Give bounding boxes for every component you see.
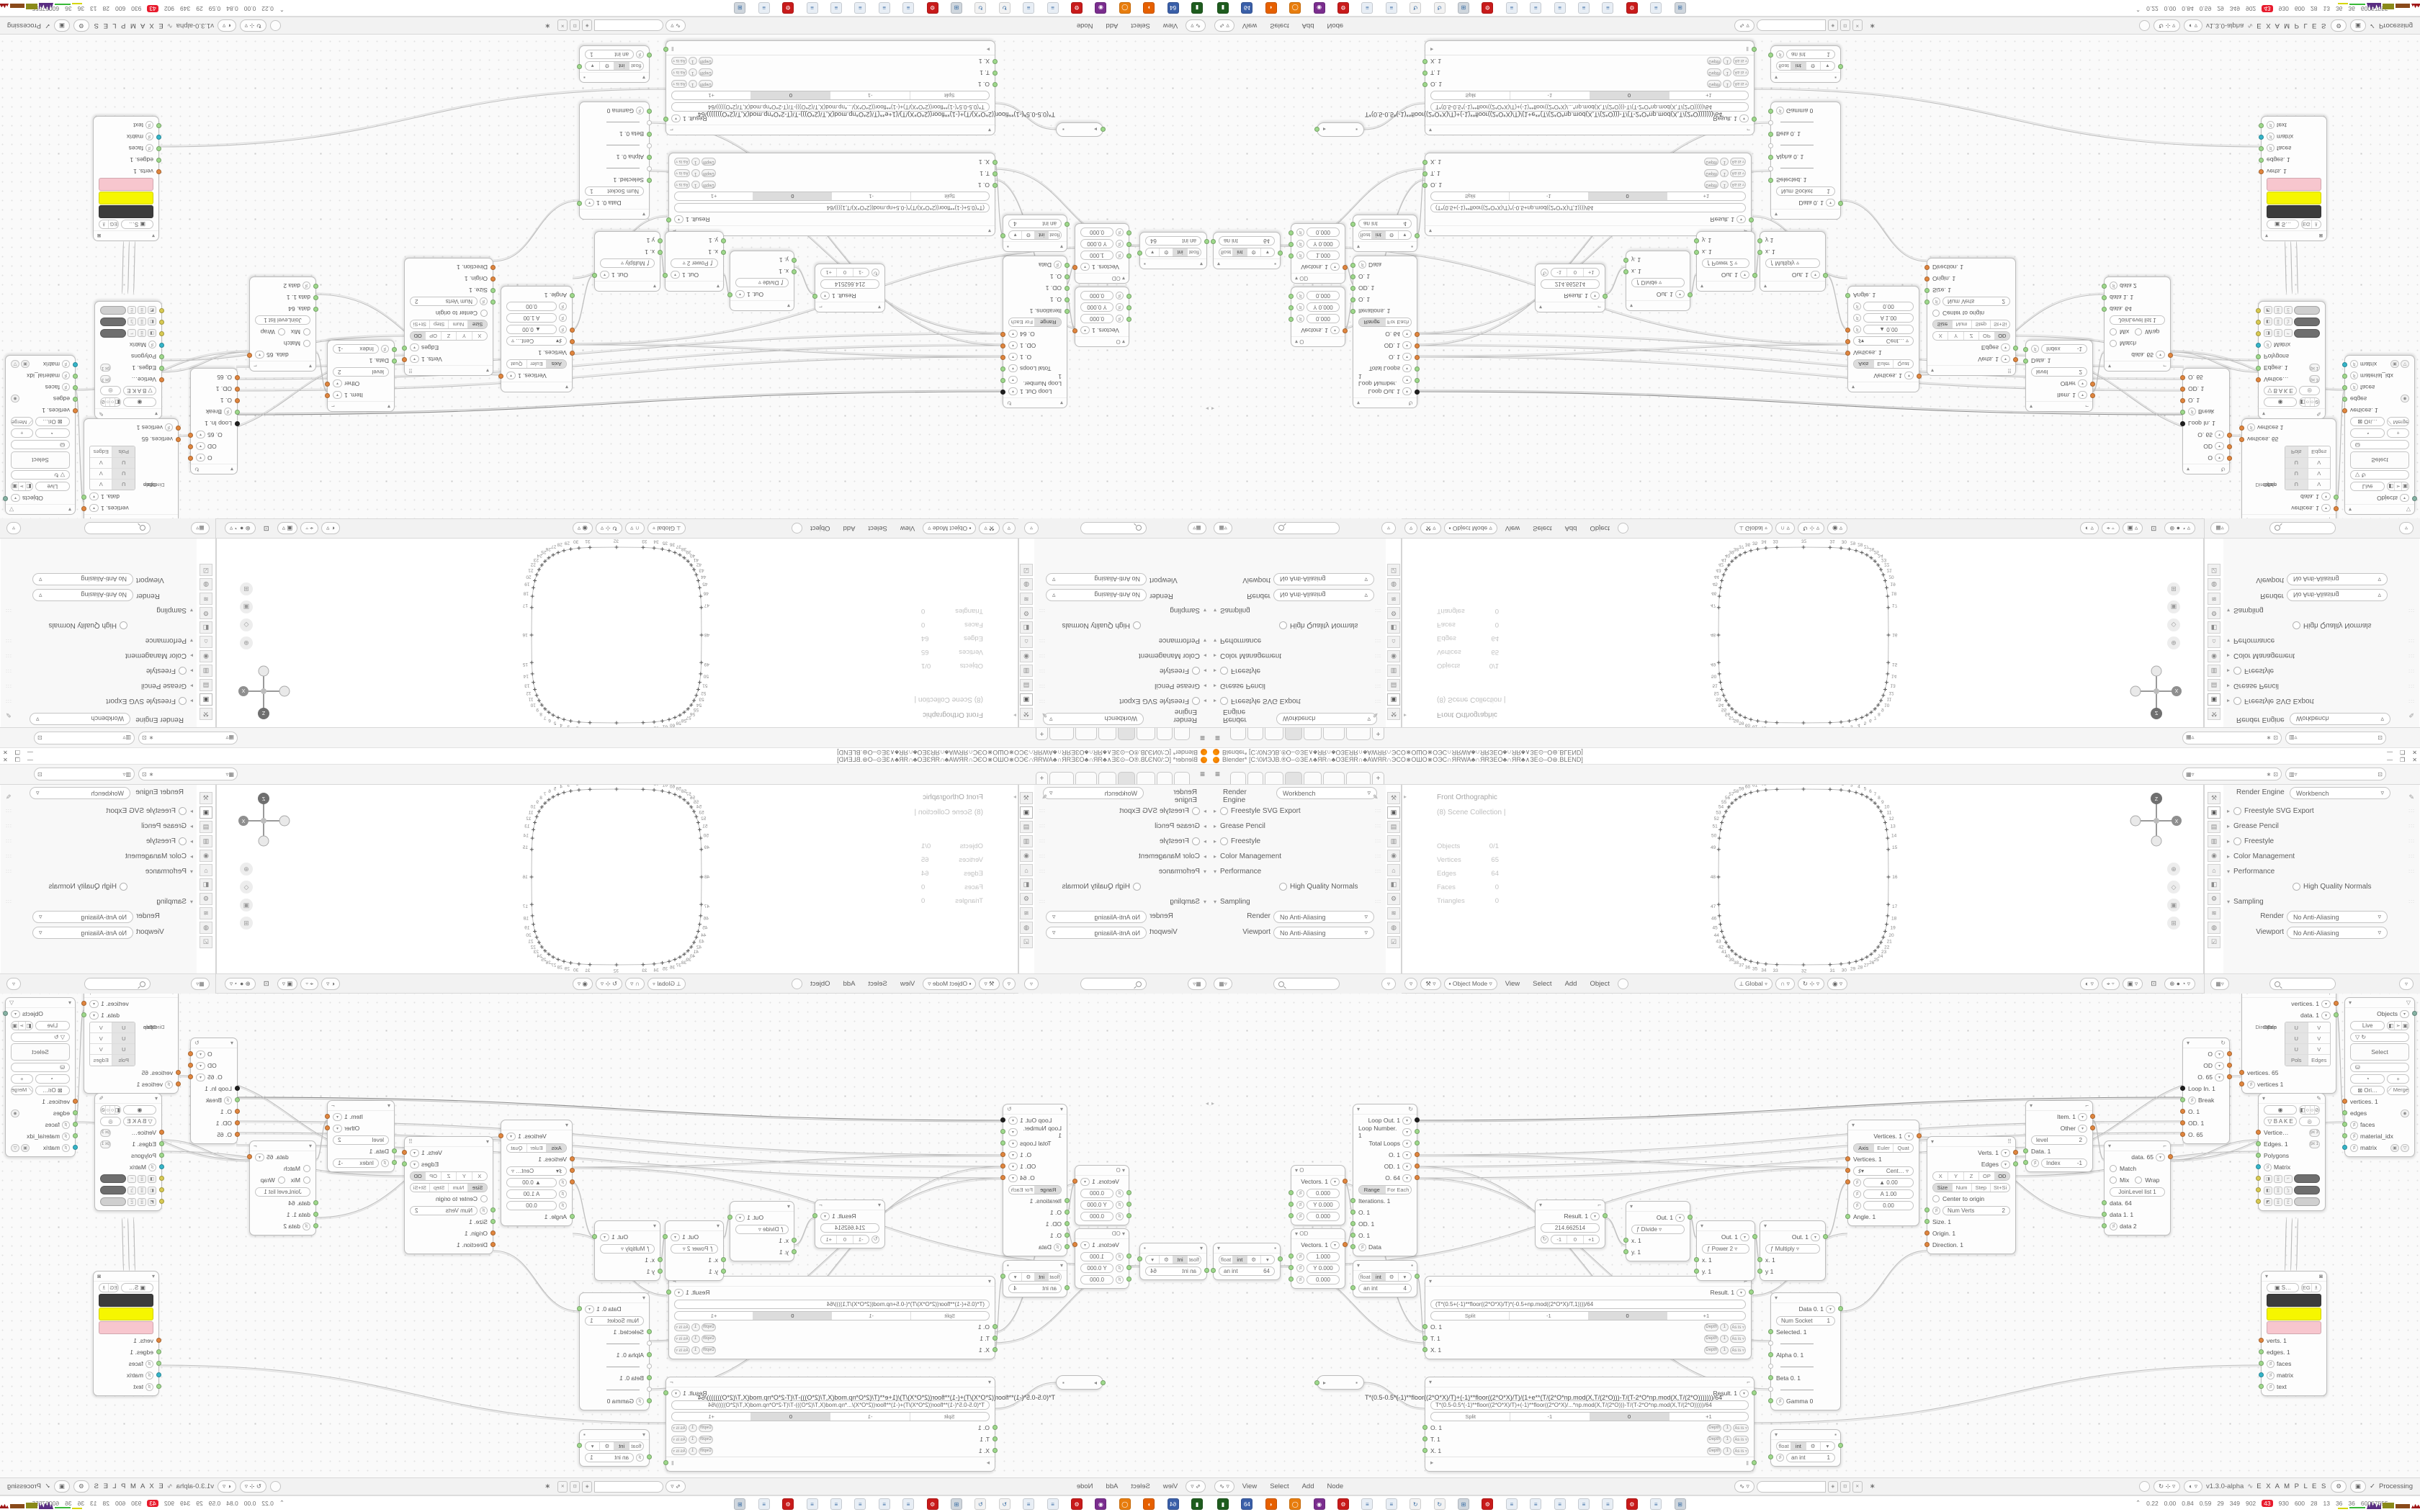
input-option-button[interactable]: Depth — [702, 158, 716, 166]
socket-green[interactable] — [1126, 1265, 1131, 1270]
view-layer-selector[interactable]: ▥▿⊡ — [34, 732, 135, 744]
header-control[interactable]: ◉ ▿ — [573, 523, 593, 535]
properties-tab-icon[interactable]: ▥ — [200, 665, 212, 677]
node-formula-a[interactable]: ▾⌐Result. 1▾(T*(0.5+(-1)**floor((2*O*X)/… — [668, 1276, 995, 1359]
socket-green[interactable] — [1422, 1347, 1428, 1352]
node-field[interactable]: ƒ Multiply ▿ — [1765, 1244, 1820, 1254]
socket-yellow[interactable] — [159, 331, 164, 336]
add-workspace-button[interactable]: + — [1372, 772, 1384, 784]
segment-button[interactable]: Split — [1431, 1312, 1510, 1320]
input-option-button[interactable]: px 3 — [100, 1129, 111, 1137]
node-field[interactable]: ƒ Power 2 ▿ — [1702, 259, 1749, 269]
menu-select[interactable]: Select — [1533, 525, 1551, 533]
socket-menu-icon[interactable]: ▾ — [1402, 1128, 1412, 1136]
properties-section-color-management[interactable]: ▸Color Management::: — [1034, 648, 1210, 663]
segment-button[interactable]: int — [1791, 63, 1806, 71]
segment-button[interactable]: St+Si — [411, 1184, 429, 1192]
node-header[interactable]: ▾▪ — [1353, 241, 1417, 251]
segment-button[interactable]: 0 — [1589, 1312, 1667, 1320]
taskbar-icon-sync-blue[interactable]: ↻ — [974, 1498, 986, 1510]
socket-orange[interactable] — [2180, 1120, 2185, 1125]
socket-menu-icon[interactable]: ▾ — [2215, 1062, 2224, 1070]
segment-button[interactable]: ⚙ — [599, 63, 614, 71]
input-option-button[interactable]: 1 — [689, 69, 697, 77]
node-header[interactable]: ▾↻ — [1353, 397, 1417, 408]
socket-empty[interactable] — [1768, 1341, 1773, 1346]
number-field[interactable]: level2 — [333, 368, 389, 377]
checkbox[interactable] — [1279, 621, 1287, 629]
node-header[interactable]: ▾◙ — [94, 1272, 158, 1282]
display-toggle-button[interactable]: ◧ — [148, 1187, 156, 1194]
window-controls[interactable]: —❐✕ — [3, 757, 33, 763]
input-option-button[interactable]: As is ▿ — [1730, 1346, 1746, 1354]
maximize-button[interactable]: ❐ — [2400, 749, 2405, 755]
properties-tab-icon[interactable]: ◧ — [200, 878, 212, 891]
checkbox[interactable] — [480, 310, 488, 317]
color-field[interactable] — [100, 318, 126, 326]
unlink-button[interactable]: ✕ — [1852, 1481, 1863, 1493]
taskbar-icon-calculator[interactable]: ⊞ — [1675, 2, 1686, 14]
input-option-button[interactable]: 1 — [1720, 1335, 1729, 1343]
node-collapsed[interactable]: ▸▪ — [1056, 1375, 1103, 1390]
socket-green[interactable] — [2013, 346, 2018, 351]
segmented-buttons[interactable]: AxisEulerQuat — [1853, 360, 1914, 369]
header-tool-button[interactable]: ▣ — [2350, 19, 2366, 32]
menu-select[interactable]: Select — [1131, 22, 1149, 30]
taskbar-icon-blender[interactable]: ◯ — [1119, 2, 1131, 14]
menu-view[interactable]: View — [900, 980, 915, 988]
segment-button[interactable]: OD — [411, 333, 425, 341]
socket-green[interactable] — [2259, 123, 2264, 128]
node-field[interactable]: ▽ ↻ — [2350, 1032, 2409, 1042]
header-control[interactable]: ⊕ ● ◔ ▿ — [225, 978, 256, 990]
node-header[interactable]: ▾ O — [1075, 336, 1129, 346]
input-option-button[interactable]: As is ▿ — [1733, 1447, 1749, 1455]
node-button[interactable]: ◉ — [2264, 398, 2297, 408]
socket-green[interactable] — [1422, 183, 1428, 188]
socket-green[interactable] — [2023, 1160, 2028, 1165]
socket-menu-icon[interactable]: ▾ — [11, 1010, 20, 1018]
node-header[interactable]: ▾⌐ — [815, 1200, 884, 1210]
socket-orange[interactable] — [1415, 355, 1420, 360]
properties-tab-strip[interactable]: ⚒▣▤▥◉⌂◧⚙≋◍☑ — [1018, 792, 1034, 948]
number-field[interactable]: 1.000 — [1307, 1252, 1340, 1261]
node-header[interactable]: ▾⌐ — [1425, 1377, 1754, 1387]
properties-tab-icon[interactable]: ≋ — [1020, 907, 1033, 919]
node-header[interactable]: ▾ — [1626, 300, 1690, 310]
socket-green[interactable] — [1694, 238, 1699, 243]
number-field[interactable]: Num Socket1 — [1776, 187, 1835, 197]
table-option[interactable]: U — [2285, 1044, 2308, 1054]
workspace-tab[interactable] — [1075, 728, 1097, 740]
number-field[interactable]: an int1 — [585, 1453, 634, 1462]
socket-green[interactable] — [1126, 317, 1131, 322]
properties-tab-strip[interactable]: ⚒▣▤▥◉⌂◧⚙≋◍☑ — [198, 792, 214, 948]
socket-orange[interactable] — [247, 1154, 252, 1159]
tree-name-input[interactable] — [1757, 1481, 1826, 1493]
header-control[interactable] — [792, 523, 802, 534]
grid-icon[interactable]: ⊞ — [2167, 582, 2180, 595]
copy-icon[interactable]: ⊡ — [2378, 735, 2383, 742]
icon-button[interactable]: ⟋ Merge — [12, 1086, 32, 1094]
socket-orange[interactable] — [402, 357, 407, 362]
socket-green[interactable] — [1350, 1210, 1355, 1215]
input-option-button[interactable]: 1 — [689, 1436, 697, 1444]
header-control[interactable]: ∩ ▿ — [1775, 523, 1795, 535]
socket-green[interactable] — [1752, 1390, 1757, 1395]
segmented-buttons[interactable]: AxisEulerQuat — [506, 1143, 567, 1153]
socket-orange[interactable] — [1845, 1168, 1850, 1173]
display-toggle-button[interactable]: ⣿ — [138, 318, 146, 326]
socket-green[interactable] — [1289, 1202, 1294, 1207]
socket-empty[interactable] — [647, 166, 652, 171]
properties-section-color-management[interactable]: ▸Color Management::: — [2223, 849, 2419, 864]
color-swatch[interactable] — [99, 1294, 153, 1307]
scene-selector[interactable]: ▦▿∗⊡ — [2182, 732, 2282, 744]
socket-menu-icon[interactable]: ▾ — [674, 1289, 684, 1297]
node-number-int-64[interactable]: ▾▪floatint⚙▾an int64 — [1213, 232, 1281, 269]
properties-tab-icon[interactable]: ⚙ — [2208, 607, 2220, 619]
socket-orange[interactable] — [1000, 1164, 1005, 1169]
table-option[interactable]: Edges — [90, 446, 112, 457]
socket-green[interactable] — [1415, 1140, 1420, 1146]
menu-view[interactable]: View — [1163, 1482, 1178, 1490]
segment-button[interactable]: ⚙ — [1159, 1256, 1173, 1264]
socket-menu-icon[interactable]: ▾ — [1402, 330, 1412, 338]
viewport-3d[interactable]: ▸ Front Orthographic (8) Scene Collectio… — [1402, 539, 2204, 727]
node-vector-o[interactable]: ▾ OVectors. 1▾♯0.000♯Y 0.000♯0.000 — [1075, 287, 1129, 347]
icon-button[interactable]: EG — [108, 221, 117, 229]
node-collapsed[interactable]: ▸▪ — [1317, 122, 1364, 137]
socket-orange[interactable] — [2013, 1150, 2018, 1155]
socket-green[interactable] — [1838, 1306, 1843, 1311]
input-option-button[interactable]: Depth — [702, 170, 716, 178]
input-option-button[interactable]: Depth — [699, 1436, 713, 1444]
socket-menu-icon[interactable]: ▾ — [1008, 1174, 1018, 1182]
socket-green[interactable] — [1204, 239, 1209, 244]
socket-green[interactable] — [1768, 1352, 1773, 1357]
checkbox[interactable] — [1192, 697, 1200, 705]
node-math-multiply[interactable]: ▾Out. 1▾ƒ Multiply ▿x. 1y 1 — [1760, 231, 1826, 292]
zoom-icon[interactable]: ⊕ — [2167, 636, 2180, 649]
socket-green[interactable] — [663, 117, 668, 122]
socket-orange[interactable] — [235, 1132, 240, 1137]
header-control[interactable]: ▣ ▿ — [277, 523, 298, 535]
socket-orange[interactable] — [1924, 276, 1930, 282]
socket-menu-icon[interactable]: ▾ — [196, 443, 205, 451]
socket-green[interactable] — [490, 1207, 496, 1212]
socket-orange[interactable] — [1343, 328, 1348, 333]
segmented-buttons[interactable]: RangeFor Each — [1008, 1185, 1062, 1194]
workspace-tab[interactable] — [1157, 772, 1173, 784]
properties-section-performance[interactable]: ▾Performance::: — [2223, 864, 2419, 879]
number-field[interactable]: Num Socket1 — [1776, 1316, 1835, 1326]
icon-button[interactable]: ◎ — [2300, 1117, 2319, 1125]
node-header[interactable]: ▾⌐ — [2026, 401, 2092, 411]
socket-menu-icon[interactable]: ▾ — [600, 271, 609, 279]
socket-orange[interactable] — [81, 506, 86, 511]
checkbox[interactable] — [303, 1176, 310, 1184]
taskbar-icon-notepad[interactable]: ≡ — [1506, 1498, 1518, 1510]
menu-add[interactable]: Add — [1565, 980, 1577, 988]
taskbar-icon-console[interactable]: ▮ — [1217, 2, 1229, 14]
socket-green[interactable] — [2102, 307, 2107, 312]
segmented-buttons[interactable]: floatint⚙▾ — [1008, 1272, 1062, 1282]
node-number-int-4[interactable]: ▾▪floatint⚙▾an int4 — [1003, 1260, 1067, 1297]
socket-green[interactable] — [647, 1329, 652, 1334]
socket-green[interactable] — [647, 132, 652, 137]
socket-green[interactable] — [73, 374, 78, 379]
header-control[interactable]: ▣ ▿ — [2123, 978, 2143, 990]
socket-menu-icon[interactable]: ▾ — [1330, 1178, 1340, 1186]
socket-green[interactable] — [1422, 1425, 1428, 1430]
socket-menu-icon[interactable]: ▾ — [333, 1125, 342, 1133]
socket-green[interactable] — [81, 1012, 86, 1017]
display-toggle-button[interactable]: ◨ — [148, 1175, 156, 1183]
input-option-button[interactable]: As is ▿ — [1730, 158, 1746, 166]
segment-button[interactable]: Euler — [526, 1144, 547, 1152]
properties-tab-icon[interactable]: ☑ — [200, 936, 212, 948]
display-toggle-button[interactable]: ⣳ — [127, 1187, 136, 1194]
number-field[interactable]: 0.000 — [1307, 1275, 1340, 1284]
taskbar-icon-calculator[interactable]: ⊞ — [1675, 1498, 1686, 1510]
node-button[interactable]: Live — [35, 482, 70, 492]
segmented-buttons[interactable]: floatint⚙▾ — [1219, 248, 1275, 258]
node-header[interactable]: ▾⌐ — [1536, 302, 1605, 312]
socket-menu-icon[interactable]: ▾ — [2215, 431, 2224, 439]
node-list-item[interactable]: ▾⌐Item. 1▾Other▾level2Data. 1♯Index-1 — [327, 340, 395, 412]
number-field[interactable]: 0.00 — [1863, 302, 1914, 312]
socket-menu-icon[interactable]: ▾ — [2156, 1153, 2165, 1161]
editor-type-button[interactable]: ▦▿ — [191, 978, 210, 990]
menu-hamburger-icon[interactable]: ≡ — [1215, 770, 1220, 778]
cycle-button[interactable]: ↻ — [871, 1236, 879, 1243]
number-field[interactable]: A 1.00 — [1863, 1189, 1914, 1199]
socket-menu-icon[interactable]: ▾ — [2321, 1000, 2331, 1008]
properties-tab-icon[interactable]: ◧ — [1387, 621, 1400, 634]
socket-black[interactable] — [2180, 421, 2185, 426]
taskbar-icon-notepad[interactable]: ≡ — [1554, 2, 1566, 14]
socket-menu-icon[interactable]: ▾ — [1826, 1305, 1835, 1313]
render-engine-dropdown[interactable]: Workbench▿ — [1276, 713, 1377, 725]
input-option-button[interactable]: px 3 — [2309, 1129, 2320, 1137]
node-list-join[interactable]: ▾⌐data. 65▾MatchMixWrapJoinLevel list 1d… — [2104, 1140, 2171, 1236]
socket-black[interactable] — [1415, 390, 1420, 395]
segment-button[interactable]: OP — [1979, 333, 1994, 341]
header-control[interactable]: ◐ ▿ — [2184, 1480, 2202, 1493]
segment-button[interactable]: ⚙ — [1021, 232, 1034, 240]
segment-button[interactable]: Euler — [1874, 1144, 1894, 1152]
header-control[interactable]: ▪ Object Mode ▿ — [923, 978, 976, 990]
number-field[interactable]: level2 — [2031, 368, 2087, 377]
socket-green[interactable] — [1211, 1268, 1216, 1273]
header-control[interactable]: ↻ ⊹ ▿ — [240, 1480, 266, 1493]
properties-section-color-management[interactable]: ▸Color Management::: — [1, 849, 197, 864]
node-data-socket[interactable]: ▾Data 0. 1▾Num Socket1Selected. 1Alpha 0… — [1770, 102, 1841, 220]
socket-green[interactable] — [235, 410, 240, 415]
fake-user-button[interactable]: ◈ — [582, 1481, 592, 1493]
properties-section-performance[interactable]: ▾Performance::: — [1034, 864, 1210, 879]
properties-section-grease-pencil[interactable]: ▸Grease Pencil::: — [2223, 819, 2419, 834]
input-option-button[interactable]: 1 — [1720, 158, 1729, 166]
input-option-button[interactable]: Depth — [702, 1335, 716, 1343]
search-input[interactable] — [2269, 978, 2336, 990]
socket-orange[interactable] — [325, 1125, 330, 1130]
socket-orange[interactable] — [1415, 1152, 1420, 1157]
taskbar-icon-sync-blue[interactable]: ↻ — [1434, 2, 1446, 14]
input-option-button[interactable]: 1 — [689, 1447, 697, 1455]
socket-orange[interactable] — [2239, 1081, 2244, 1086]
socket-menu-icon[interactable]: ▾ — [735, 291, 745, 299]
properties-tab-icon[interactable]: ▤ — [2208, 821, 2220, 833]
segment-button[interactable]: ▾ — [1146, 249, 1159, 257]
socket-green[interactable] — [792, 1249, 797, 1254]
socket-orange[interactable] — [570, 1156, 575, 1161]
pin-icon[interactable]: ∗ — [2267, 735, 2272, 742]
socket-green[interactable] — [1422, 82, 1428, 87]
socket-green[interactable] — [73, 397, 78, 402]
node-viewer-draw[interactable]: ▾▽Objects▾Live◧➣▣▽ ↻Select⛁◔+⊠ Ori…⟋ Mer… — [5, 997, 76, 1157]
icon-button[interactable]: ▣ — [12, 1022, 18, 1030]
processing-checkbox[interactable]: ✓ — [2370, 1482, 2375, 1490]
socket-menu-icon[interactable]: ▾ — [1826, 199, 1835, 207]
socket-orange[interactable] — [2256, 377, 2261, 382]
icon-button[interactable]: ○ — [105, 399, 109, 407]
monitor-expand-icon[interactable]: ⌃ — [279, 1499, 284, 1507]
node-header[interactable]: ▾▪ — [580, 72, 649, 82]
cycle-button[interactable]: ↻ — [871, 269, 879, 277]
number-field[interactable]: an int64 — [1219, 1266, 1275, 1276]
segment-button[interactable]: +1 — [675, 193, 753, 201]
node-bake-viewer[interactable]: ▾✎◉◧○○⊘▽ B A K E◎Vertice…px 3Edges. 1px … — [94, 1093, 162, 1211]
header-control[interactable]: ∿ ▿ — [1214, 19, 1234, 32]
minimize-button[interactable]: — — [27, 757, 33, 763]
socket-orange[interactable] — [235, 387, 240, 392]
socket-green[interactable] — [658, 250, 663, 255]
socket-green[interactable] — [1350, 263, 1355, 268]
display-toggle-button[interactable]: ⣿ — [2274, 1187, 2282, 1194]
socket-menu-icon[interactable]: ▾ — [671, 115, 681, 123]
input-option-button[interactable]: 1 — [1723, 58, 1731, 66]
node-header[interactable]: ▾ — [665, 281, 723, 291]
icon-button[interactable]: + — [12, 1075, 32, 1083]
taskbar-icon-notepad[interactable]: ≡ — [1650, 1498, 1662, 1510]
node-header[interactable]: ▾ — [665, 1221, 723, 1231]
socket-green[interactable] — [1126, 253, 1131, 258]
header-control[interactable] — [2139, 20, 2150, 31]
socket-green[interactable] — [721, 238, 726, 243]
display-toggle-button[interactable]: ◧ — [148, 318, 156, 326]
header-control[interactable]: ⚒ ▿ — [1420, 978, 1440, 990]
input-option-button[interactable]: Depth — [1704, 1335, 1718, 1343]
header-control[interactable]: ∩ ▿ — [625, 978, 645, 990]
unlink-button[interactable]: ✕ — [557, 1481, 568, 1493]
antialiasing-dropdown[interactable]: No Anti-Aliasing▿ — [1046, 927, 1147, 939]
node-field[interactable]: ⛁ — [11, 1063, 70, 1072]
taskbar-icon-gears-red[interactable]: ⚙ — [927, 2, 938, 14]
node-header[interactable]: ▾⌐ — [328, 1101, 394, 1111]
node-rotate-vertices[interactable]: ▾Vertices. 1▾AxisEulerQuatVertices. 1♯▾C… — [501, 1120, 573, 1226]
taskbar-icon-firefox[interactable]: ◗ — [1265, 1498, 1277, 1510]
menu-select[interactable]: Select — [1270, 22, 1289, 30]
display-toggle-button[interactable]: ⣟ — [2284, 307, 2293, 315]
node-loop-out[interactable]: ▾↻Loop Out. 1▾Loop Number. 1▾Total Loops… — [1353, 256, 1417, 408]
window-controls[interactable]: —❐✕ — [3, 749, 33, 755]
segmented-buttons[interactable]: XYZOPOD — [410, 332, 488, 341]
segment-button[interactable]: +1 — [1667, 193, 1745, 201]
node-loop-out[interactable]: ▾↻Loop Out. 1▾Loop Number. 1▾Total Loops… — [1353, 1104, 1417, 1256]
properties-tab-icon[interactable]: ◉ — [200, 650, 212, 662]
socket-green[interactable] — [577, 201, 582, 206]
window-controls[interactable]: —❐✕ — [2387, 749, 2417, 755]
node-loop-out[interactable]: ▾↻Loop Out. 1▾Loop Number. 1▾Total Loops… — [1003, 1104, 1067, 1256]
socket-cyan[interactable] — [2259, 135, 2264, 140]
table-option[interactable]: U — [2285, 480, 2308, 490]
number-field[interactable]: an int1 — [1786, 50, 1835, 60]
segment-button[interactable]: int — [1372, 232, 1385, 240]
table-option[interactable]: U — [112, 1044, 135, 1054]
table-option[interactable]: Edges — [2308, 1055, 2331, 1066]
workspace-tab[interactable] — [1049, 772, 1074, 784]
display-toggle-button[interactable]: ⣿ — [2274, 1175, 2282, 1183]
input-option-button[interactable]: Depth — [702, 1346, 716, 1354]
node-list-item[interactable]: ▾⌐Item. 1▾Other▾level2Data. 1♯Index-1 — [327, 1100, 395, 1172]
workspace-tab[interactable] — [1137, 772, 1155, 784]
input-option-button[interactable]: ▽ — [2401, 1144, 2409, 1152]
select-button[interactable]: Select — [11, 1043, 70, 1061]
icon-button[interactable]: EG — [2302, 1284, 2311, 1292]
properties-tab-icon[interactable]: ▣ — [2208, 693, 2220, 706]
monitor-expand-icon[interactable]: ⌃ — [2136, 5, 2141, 13]
socket-orange[interactable] — [2227, 1051, 2232, 1056]
segmented-buttons[interactable]: SizeNumStepSt+Si — [410, 1183, 488, 1192]
socket-green[interactable] — [490, 300, 496, 305]
header-control[interactable]: ↻ ⊹ ▿ — [240, 19, 266, 32]
node-button[interactable]: ⊠ Ori… — [2350, 418, 2385, 427]
segment-button[interactable]: X — [472, 333, 487, 341]
segment-button[interactable]: OD — [1995, 1172, 2009, 1180]
socket-orange[interactable] — [2180, 398, 2185, 403]
icon-button[interactable]: ○ — [110, 399, 115, 407]
socket-green[interactable] — [156, 123, 161, 128]
socket-orange[interactable] — [188, 1063, 193, 1068]
node-header[interactable]: ▾ — [730, 300, 794, 310]
table-option[interactable]: U — [112, 1033, 135, 1043]
pan-hand-icon[interactable]: ◇ — [240, 618, 253, 631]
socket-menu-icon[interactable]: ▾ — [1008, 354, 1018, 361]
properties-tab-strip[interactable]: ⚒▣▤▥◉⌂◧⚙≋◍☑ — [1386, 564, 1402, 720]
segment-button[interactable]: Range — [1359, 319, 1386, 327]
properties-section-color-management[interactable]: ▸Color Management::: — [1210, 849, 1386, 864]
socket-orange[interactable] — [2013, 357, 2018, 362]
socket-green[interactable] — [1126, 1254, 1131, 1259]
minimize-button[interactable]: — — [2387, 749, 2393, 755]
render-engine-dropdown[interactable]: Workbench▿ — [2290, 787, 2390, 799]
header-control[interactable]: ◐ ▿ — [321, 523, 340, 535]
checkbox[interactable] — [2110, 1176, 2117, 1184]
header-control[interactable]: ∿ ▿ — [1214, 1480, 1234, 1493]
color-swatch[interactable] — [99, 1308, 153, 1320]
socket-menu-icon[interactable]: ▾ — [2001, 1161, 2010, 1169]
node-header[interactable]: ▾↻ — [191, 1038, 237, 1048]
render-engine-dropdown[interactable]: Workbench▿ — [30, 787, 130, 799]
properties-section-freestyle[interactable]: ▸Freestyle::: — [1034, 834, 1210, 849]
socket-green[interactable] — [490, 1219, 496, 1224]
node-header[interactable]: ▾ OD — [1291, 1229, 1345, 1239]
taskbar-icon-notepad[interactable]: ≡ — [1047, 1498, 1059, 1510]
socket-green[interactable] — [1350, 1198, 1355, 1203]
number-field[interactable]: 0.000 — [1080, 1189, 1113, 1198]
